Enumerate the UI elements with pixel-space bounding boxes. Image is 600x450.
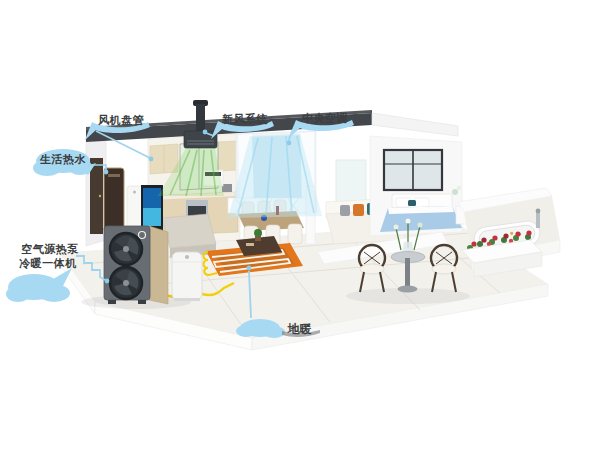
buffer-water-tank xyxy=(172,252,202,301)
heat-pump-label-line2: 冷暖一体机 xyxy=(19,257,77,270)
tv-panel xyxy=(141,185,163,231)
floor-heating-label: 地暖 xyxy=(287,322,313,336)
fan-coil-label: 风机盘管 xyxy=(97,114,144,126)
house-illustration: 风机盘管 新风系统 中央空调 生活热水 空气源热泵 冷暖一体机 xyxy=(0,0,600,450)
hot-water-label: 生活热水 xyxy=(39,153,87,166)
upper-cabinet-right xyxy=(218,141,238,171)
water-purifier-unit xyxy=(127,186,142,232)
bath-faucet xyxy=(536,212,540,228)
house-cutaway-diagram: 风机盘管 新风系统 中央空调 生活热水 空气源热泵 冷暖一体机 xyxy=(0,0,600,450)
coffee-machine xyxy=(222,184,232,192)
fresh-air-label: 新风系统 xyxy=(221,113,269,125)
left-hallway-wall xyxy=(86,141,106,246)
kitchen-island xyxy=(162,214,216,248)
bedroom xyxy=(370,136,469,236)
hot-water-cabinet xyxy=(104,168,124,232)
heat-pump-label-line1: 空气源热泵 xyxy=(21,243,79,256)
central-ac-label: 中央空调 xyxy=(302,112,348,124)
heat-pump-outdoor-unit xyxy=(104,226,168,304)
